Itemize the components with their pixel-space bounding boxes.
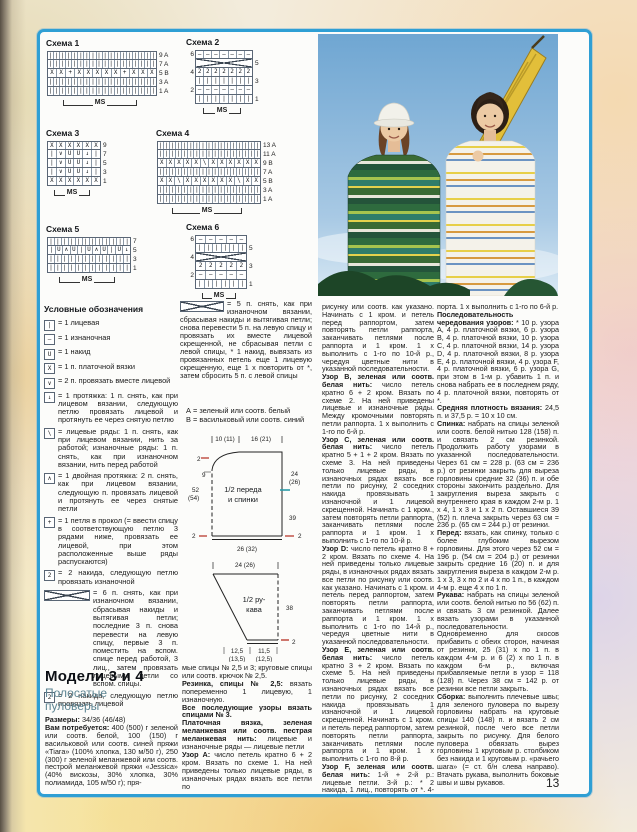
chart-cell: – xyxy=(245,86,252,94)
chart-cell: – xyxy=(229,51,237,58)
chart-cell: X xyxy=(48,177,57,185)
chart-cell: U xyxy=(86,246,94,254)
chart-cell: | xyxy=(205,244,214,252)
chart-cell: U xyxy=(74,168,83,176)
chart-cell: U xyxy=(74,150,83,158)
chart-cell: | xyxy=(90,255,97,263)
legend-item: |= 1 лицевая xyxy=(44,319,178,331)
chart-cell: | xyxy=(124,264,130,272)
chart-cell: | xyxy=(110,238,117,245)
chart-cell: | xyxy=(220,77,228,85)
schematic-sleeve: 24 (26) 38 12,5 (13,5) 11,5 (12,5) 2 1/2… xyxy=(180,558,315,662)
chart-cell: | xyxy=(48,255,55,263)
chart-cell: – xyxy=(227,271,237,279)
measure-sleeve-b2-alt: (12,5) xyxy=(256,656,272,662)
chart-cell: X xyxy=(252,159,260,167)
legend-text: = 2 п. провязать вместе лицевой xyxy=(58,377,170,389)
measure-sleeve-top: 24 (26) xyxy=(235,562,255,569)
chart-cell: | xyxy=(48,246,56,254)
chart-cell: 2 xyxy=(220,68,228,76)
chart-cell: X xyxy=(227,159,236,167)
chart-cell: | xyxy=(90,238,97,245)
color-key: А = зеленый или соотв. белыйВ = василько… xyxy=(186,406,316,424)
chart-row: 4 xyxy=(186,253,271,262)
chart-cell: | xyxy=(90,264,97,272)
photo-two-models xyxy=(318,34,558,296)
chart-cell: | xyxy=(196,77,204,85)
chart-cell: | xyxy=(255,195,260,203)
legend-symbol-icon: + xyxy=(44,517,55,528)
chart-cell: – xyxy=(245,51,252,58)
legend-text: = лицевые ряды: 1 п. снять, как при лице… xyxy=(58,428,178,469)
chart-cell: | xyxy=(83,264,90,272)
chart-cell: ↓ xyxy=(83,150,92,158)
chart-cell: X xyxy=(75,69,84,77)
chart-cell: X xyxy=(74,177,83,185)
chart-cell: X xyxy=(84,69,93,77)
legend-text: = 1 изнаночная xyxy=(58,334,110,346)
chart-cell: | xyxy=(213,280,222,288)
chart-cell: X xyxy=(244,159,253,167)
color-key-line: А = зеленый или соотв. белый xyxy=(186,406,316,415)
legend-text: = 1 п. платочной вязки xyxy=(58,363,135,375)
chart-cell: | xyxy=(62,238,69,245)
rapport-bracket: MS xyxy=(54,187,89,196)
chart-cell: X xyxy=(201,177,210,185)
chart-row: 5 xyxy=(186,59,277,68)
chart-cell: \ xyxy=(201,159,210,167)
legend-items: |= 1 лицевая–= 1 изнаночнаяU= 1 накидX= … xyxy=(44,319,178,708)
chart-cell: 2 xyxy=(237,262,246,270)
legend-text: = 2 накида, следующую петлю провязать из… xyxy=(58,569,178,586)
chart-cell: X xyxy=(92,177,100,185)
chart-row: ||||||||||||3 xyxy=(46,255,155,264)
chart-cell: ↓ xyxy=(83,168,92,176)
chart-cell: 2 xyxy=(227,262,237,270)
chart-cell: ∧ xyxy=(63,246,71,254)
legend-text: = 1 лицевая xyxy=(58,319,99,331)
text-column-b: мые спицы № 2,5 и 3; круговые спицы или … xyxy=(182,664,312,791)
chart-cell: X xyxy=(167,159,176,167)
chart-cell: | xyxy=(229,77,237,85)
chart-row: XX+XXXXX+XXX5 B xyxy=(46,69,181,78)
chart-row: 42222222 xyxy=(186,68,277,77)
chart-cell: X xyxy=(252,177,260,185)
chart-row: ||||||||||||||||||1 A xyxy=(46,87,181,96)
chart-cell: | xyxy=(237,77,245,85)
measure-neck-depth: 2 xyxy=(197,456,201,463)
paragraph: Последовательность чередования узоров: *… xyxy=(437,311,559,405)
chart-cell: | xyxy=(55,264,62,272)
chart-cell: X xyxy=(74,142,83,149)
chart-cell: | xyxy=(48,168,57,176)
content-frame: Схема 1||||||||||||||||||9 A||||||||||||… xyxy=(37,29,592,797)
chart-cell: | xyxy=(255,142,260,149)
chart-cell: | xyxy=(205,280,214,288)
chart-cell: | xyxy=(196,280,205,288)
measure-side-length: 52 xyxy=(192,487,200,494)
chart-cell: | xyxy=(103,238,110,245)
chart-cell: | xyxy=(196,244,205,252)
paragraph: Резинка, спицы № 2,5: вязать попеременно… xyxy=(182,680,312,704)
chart-cell: – xyxy=(196,86,204,94)
measure-rib-left: 2 xyxy=(192,533,196,540)
chart-cell: X xyxy=(192,159,201,167)
chart-cell: – xyxy=(212,86,220,94)
legend-symbol-icon xyxy=(44,590,90,601)
scheme-title: Схема 1 xyxy=(46,38,181,48)
schematic-body-label-2: и спинки xyxy=(228,495,258,504)
chart-cell: – xyxy=(206,236,216,243)
chart-row: |||||||||||||||||3 A xyxy=(156,186,285,195)
legend-item: += 1 петля в прокол (= ввести спицу в со… xyxy=(44,517,178,567)
measure-neck-width: 10 (11) xyxy=(215,436,234,443)
paragraph: Узор Е, зеленая или соотв. белая нить: ч… xyxy=(322,646,434,763)
chart-row: |||||||||||||||||7 A xyxy=(156,168,285,177)
paragraph: мые спицы № 2,5 и 3; круговые спицы или … xyxy=(182,664,312,680)
chart-row: |||||||||||||||||1 A xyxy=(156,195,285,204)
chart-cell: – xyxy=(212,51,220,58)
chart-cell: – xyxy=(237,271,246,279)
knitting-chart-scheme-6: Схема 66–––––||||||542222232–––––||||||1… xyxy=(186,222,271,299)
chart-cell: X xyxy=(57,142,66,149)
chart-cell: | xyxy=(83,255,90,263)
chart-cell: 2 xyxy=(237,68,245,76)
legend-symbol-icon: – xyxy=(44,334,55,345)
chart-row: XXXXXX1 xyxy=(46,177,125,186)
chart-cell: | xyxy=(62,255,69,263)
chart-cell: 2 xyxy=(216,262,226,270)
knitting-chart-scheme-3: Схема 3XXXXXX9|∨UU↓|7|∨UU↓|5|∨UU↓|3XXXXX… xyxy=(46,128,125,196)
scheme-title: Схема 6 xyxy=(186,222,271,232)
legend-item: ↓= 1 протяжка: 1 п. снять, как при лицев… xyxy=(44,392,178,425)
chart-cell: | xyxy=(237,95,245,103)
chart-row: 2––––– xyxy=(186,271,271,280)
chart-cell: ∨ xyxy=(57,150,66,158)
chart-cell: X xyxy=(175,159,184,167)
rapport-bracket: MS xyxy=(59,274,115,283)
chart-row: ||||||5 xyxy=(186,244,271,253)
chart-cell: | xyxy=(220,95,228,103)
chart-row: |∨UU↓|3 xyxy=(46,168,125,177)
text-column-c: рисунку или соотв. как указано. Начинать… xyxy=(322,303,434,797)
legend-item: 2= 2 накида, следующую петлю провязать и… xyxy=(44,569,178,586)
chart-cell: X xyxy=(158,159,167,167)
measure-bottom-width: 26 (32) xyxy=(237,546,257,553)
chart-cell: | xyxy=(48,150,57,158)
chart-cell: | xyxy=(230,244,239,252)
chart-cell: + xyxy=(66,69,75,77)
cap-brim xyxy=(374,119,414,127)
chart-cell: X xyxy=(184,159,193,167)
chart-cell: | xyxy=(108,246,116,254)
knitting-chart-scheme-1: Схема 1||||||||||||||||||9 A||||||||||||… xyxy=(46,38,181,106)
chart-cell: X xyxy=(227,177,236,185)
chart-cell: – xyxy=(196,51,204,58)
measure-armhole-alt: (26) xyxy=(289,479,300,486)
chart-cell: | xyxy=(110,255,117,263)
chart-cell: X xyxy=(209,159,218,167)
chart-cell: U xyxy=(71,246,79,254)
chart-cell: | xyxy=(48,238,55,245)
chart-row: |∨UU↓|5 xyxy=(46,159,125,168)
chart-cell: X xyxy=(66,177,75,185)
legend-heading: Условные обозначения xyxy=(44,304,178,314)
chart-cell: | xyxy=(245,95,252,103)
measure-right-39: 39 xyxy=(289,515,297,522)
chart-cell: 2 xyxy=(245,68,252,76)
chart-cell: X xyxy=(92,142,100,149)
chart-row: ||||||||||||||||||3 A xyxy=(46,78,181,87)
chart-cell: ↓ xyxy=(123,246,130,254)
chart-cell: ∧ xyxy=(93,246,101,254)
legend-symbol-icon: ∨ xyxy=(44,378,55,389)
rapport-bracket: MS xyxy=(63,97,136,106)
chart-row: 6––––––– xyxy=(186,50,277,59)
chart-cell: | xyxy=(92,150,100,158)
chart-cell: | xyxy=(255,168,260,176)
paragraph: Узор С, зеленая или соотв. белая нить: ч… xyxy=(322,436,434,545)
legend-symbol-icon: ↓ xyxy=(44,392,55,403)
chart-cell: X xyxy=(112,69,121,77)
measure-sleeve-rib: 2 xyxy=(292,639,296,646)
chart-cell: – xyxy=(196,271,206,279)
chart-cell: X xyxy=(218,177,227,185)
chart-cell: | xyxy=(229,95,237,103)
chart-cell: X xyxy=(83,177,92,185)
rapport-bracket: MS xyxy=(203,105,241,114)
measure-left-9: 9 xyxy=(202,472,206,479)
chart-cell: | xyxy=(222,280,231,288)
chart-cell: X xyxy=(184,177,193,185)
schematic-sleeve-label-2: кава xyxy=(246,605,263,614)
chart-cell: X xyxy=(66,142,75,149)
chart-row: ||||||||||||||||||9 A xyxy=(46,51,181,60)
chart-cell: | xyxy=(62,264,69,272)
chart-cell: U xyxy=(116,246,124,254)
chart-cell: 2 xyxy=(196,262,206,270)
paragraph: Средняя плотность вязания: 24,5 п. и 37,… xyxy=(437,404,559,420)
chart-cell: | xyxy=(196,95,204,103)
models-subheading: Полосатые пуловеры xyxy=(45,687,155,713)
chart-cell: | xyxy=(204,77,212,85)
chart-cell: – xyxy=(196,236,206,243)
scheme-title: Схема 4 xyxy=(156,128,285,138)
chart-cell: – xyxy=(206,271,216,279)
chart-cell: | xyxy=(212,95,220,103)
chart-cell: | xyxy=(92,159,100,167)
chart-cell: X xyxy=(48,69,57,77)
color-key-line: В = васильковый или соотв. синий xyxy=(186,415,316,424)
paragraph: Вам потребуется: 400 (500) г зеленой или… xyxy=(45,724,178,787)
chart-cell: | xyxy=(55,238,62,245)
rapport-bracket: MS xyxy=(202,290,236,299)
chart-row: |U∧U|U∧U|U↓5 xyxy=(46,246,155,255)
chart-cell: | xyxy=(69,264,76,272)
symbol-legend: Условные обозначения |= 1 лицевая–= 1 из… xyxy=(44,304,178,711)
measure-armhole: 24 xyxy=(291,471,299,478)
chart-cell: X xyxy=(209,177,218,185)
chart-cell: | xyxy=(222,244,231,252)
paragraph: Узор В, зеленая или соотв. белая нить: ч… xyxy=(322,373,434,435)
paragraph: Все последующие узоры вязать спицами № 3… xyxy=(182,704,312,720)
paragraph: Узор F, зеленая или соотв. белая нить: 1… xyxy=(322,763,434,797)
scheme-title: Схема 5 xyxy=(46,224,155,234)
measure-sleeve-b2: 11,5 xyxy=(258,648,270,655)
chart-cell: – xyxy=(227,236,237,243)
chart-row: XX\XXXXXX\XX5 B xyxy=(156,177,285,186)
chart-cell: | xyxy=(230,280,239,288)
chart-row: 2––––––– xyxy=(186,86,277,95)
chart-row: ||||||1 xyxy=(186,280,271,289)
legend-item: X= 1 п. платочной вязки xyxy=(44,363,178,375)
paragraph: Узор D: число петель кратно 8 + 2 кром. … xyxy=(322,545,434,646)
cable-symbol xyxy=(196,253,246,261)
chart-cell: – xyxy=(237,236,246,243)
chart-cell: X xyxy=(48,142,57,149)
chart-cell: 2 xyxy=(196,68,204,76)
chart-cell: – xyxy=(237,86,245,94)
models-heading: Модели 3 и 4 xyxy=(45,668,144,685)
knitting-chart-scheme-2: Схема 26–––––––542222222|||||||32–––––––… xyxy=(186,37,277,114)
chart-cell: | xyxy=(76,238,83,245)
legend-symbol-icon: \ xyxy=(44,428,55,439)
chart-row: ||||||||||||1 xyxy=(46,264,155,273)
paragraph: Рукава: набрать на спицы зеленой или соо… xyxy=(437,591,559,692)
measure-rib-right: 2 xyxy=(298,533,302,540)
legend-item: U= 1 накид xyxy=(44,348,178,360)
chart-cell: | xyxy=(151,52,156,59)
chart-cell: | xyxy=(213,244,222,252)
chart-cell: | xyxy=(83,238,90,245)
legend-text: = 1 петля в прокол (= ввести спицу в соо… xyxy=(58,517,178,567)
chart-cell: 2 xyxy=(204,68,212,76)
legend-item: ∨= 2 п. провязать вместе лицевой xyxy=(44,377,178,389)
chart-row: ||||||||||||||||||7 A xyxy=(46,60,181,69)
chart-cell: X xyxy=(57,177,66,185)
chart-cell: | xyxy=(245,77,252,85)
legend-item: \= лицевые ряды: 1 п. снять, как при лиц… xyxy=(44,428,178,469)
page-number: 13 xyxy=(546,776,559,790)
chart-cell: – xyxy=(237,51,245,58)
legend-symbol-icon: ∧ xyxy=(44,473,55,484)
chart-cell: U xyxy=(66,168,75,176)
chart-cell: | xyxy=(124,238,130,245)
legend-symbol-icon: U xyxy=(44,349,55,360)
schematic-body-label: 1/2 переда xyxy=(224,485,262,494)
chart-cell: | xyxy=(117,255,124,263)
knitting-chart-scheme-5: Схема 5||||||||||||7|U∧U|U∧U|U↓5||||||||… xyxy=(46,224,155,283)
chart-cell: X xyxy=(158,177,167,185)
striped-pullover-white xyxy=(446,141,535,296)
chart-cell: | xyxy=(48,159,57,167)
chart-cell: ↓ xyxy=(83,159,92,167)
legend-text: = 1 протяжка: 1 п. снять, как при лицево… xyxy=(58,392,178,425)
chart-row: |∨UU↓|7 xyxy=(46,150,125,159)
chart-cell: 2 xyxy=(212,68,220,76)
chart-cell: – xyxy=(220,86,228,94)
chart-cell: 2 xyxy=(229,68,237,76)
chart-cell: | xyxy=(255,186,260,194)
legend-item: ∧= 1 двойная протяжка: 2 п. снять, как п… xyxy=(44,472,178,513)
knitting-chart-scheme-4: Схема 4|||||||||||||||||13 A||||||||||||… xyxy=(156,128,285,214)
intro-text-column: Размеры: 34/36 (46/48)Вам потребуется: 4… xyxy=(45,716,178,787)
chart-cell: | xyxy=(124,255,130,263)
chart-cell: | xyxy=(78,246,86,254)
page-gutter-shadow xyxy=(0,0,26,832)
chart-cell: | xyxy=(212,77,220,85)
paragraph: Сборка: выполнить плечевые швы; для зеле… xyxy=(437,693,559,787)
chart-cell: X xyxy=(130,69,139,77)
chart-cell: X xyxy=(218,159,227,167)
chart-cell: | xyxy=(48,264,55,272)
chart-cell: U xyxy=(66,159,75,167)
chart-cell: | xyxy=(69,255,76,263)
chart-cell: U xyxy=(74,159,83,167)
chart-cell: U xyxy=(66,150,75,158)
scheme-title: Схема 3 xyxy=(46,128,125,138)
chart-cell: | xyxy=(117,264,124,272)
cable-symbol xyxy=(196,59,252,67)
chart-cell: ∨ xyxy=(57,159,66,167)
chart-cell: \ xyxy=(235,177,244,185)
chart-row: |||||||1 xyxy=(186,95,277,104)
chart-cell: | xyxy=(239,244,247,252)
chart-cell: | xyxy=(151,78,156,86)
magazine-page: Схема 1||||||||||||||||||9 A||||||||||||… xyxy=(0,0,637,832)
chart-cell: | xyxy=(96,238,103,245)
chart-cell: – xyxy=(216,271,226,279)
measure-sleeve-b1: 12,5 xyxy=(231,648,244,655)
legend-text: = 1 накид xyxy=(58,348,90,360)
hand-on-umbrella xyxy=(473,151,484,162)
schematic-sleeve-label: 1/2 ру- xyxy=(243,595,266,604)
text-column-d: порта. 1 х выполнить с 1-го по 6-й р.Пос… xyxy=(437,303,559,786)
chart-row: |||||||||||||||||11 A xyxy=(156,150,285,159)
chart-cell: | xyxy=(76,255,83,263)
paragraph: Узор А: число петель кратно 6 + 2 кром. … xyxy=(182,751,312,791)
legend-item: –= 1 изнаночная xyxy=(44,334,178,346)
chart-cell: | xyxy=(103,264,110,272)
chart-cell: | xyxy=(76,264,83,272)
chart-cell: X xyxy=(148,69,156,77)
cable5-note: = 5 п. снять, как при изнаночном вязании… xyxy=(180,300,312,380)
chart-cell: 2 xyxy=(206,262,216,270)
legend-text: = 1 двойная протяжка: 2 п. снять, как пр… xyxy=(58,472,178,513)
chart-cell: X xyxy=(192,177,201,185)
measure-sleeve-length: 38 xyxy=(286,605,294,612)
chart-row: |||||||3 xyxy=(186,77,277,86)
cable5-symbol-icon xyxy=(180,301,224,312)
chart-cell: | xyxy=(92,168,100,176)
chart-cell: – xyxy=(204,51,212,58)
chart-cell: \ xyxy=(175,177,184,185)
schematic-body: 10 (11) 16 (21) 2 9 52 (54) 2 24 (26) 39… xyxy=(180,428,315,558)
chart-cell: | xyxy=(239,280,247,288)
legend-symbol-icon: | xyxy=(44,320,55,331)
chart-cell: | xyxy=(55,255,62,263)
paragraph: Спинка: набрать на спицы зеленой или соо… xyxy=(437,420,559,529)
legend-symbol-icon: X xyxy=(44,363,55,374)
chart-cell: ∨ xyxy=(57,168,66,176)
chart-row: XXXXXX9 xyxy=(46,141,125,150)
chart-cell: | xyxy=(204,95,212,103)
chart-cell: | xyxy=(110,264,117,272)
chart-cell: X xyxy=(167,177,176,185)
chart-cell: X xyxy=(93,69,102,77)
measure-sleeve-b1-alt: (13,5) xyxy=(229,656,245,662)
legend-symbol-icon: 2 xyxy=(44,570,55,581)
